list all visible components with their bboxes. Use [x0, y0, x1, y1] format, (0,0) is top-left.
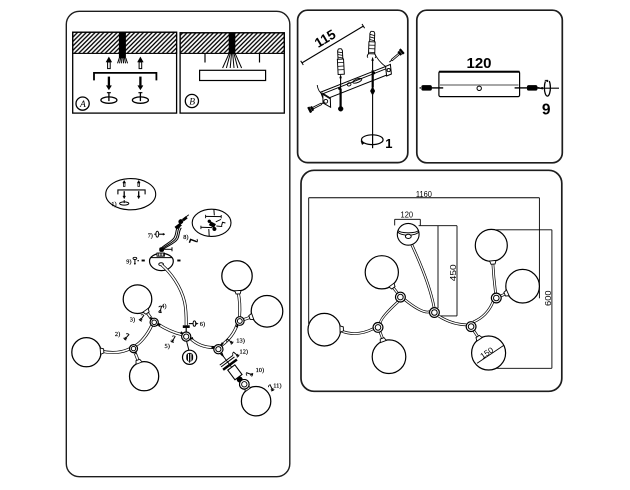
svg-text:1: 1: [385, 136, 392, 151]
svg-text:8): 8): [183, 234, 188, 241]
svg-text:3): 3): [130, 317, 135, 324]
svg-text:450: 450: [449, 264, 458, 282]
svg-text:600: 600: [544, 290, 553, 306]
svg-text:11): 11): [273, 383, 281, 390]
svg-text:9: 9: [542, 102, 551, 119]
svg-text:1): 1): [111, 201, 116, 208]
svg-text:12): 12): [240, 349, 249, 356]
svg-text:2): 2): [115, 331, 120, 338]
svg-text:9): 9): [126, 258, 131, 265]
svg-text:B: B: [189, 97, 195, 107]
svg-text:13): 13): [236, 338, 245, 345]
svg-text:10): 10): [256, 367, 265, 374]
svg-text:120: 120: [466, 55, 491, 72]
svg-text:A: A: [79, 100, 86, 110]
svg-text:6): 6): [200, 321, 205, 328]
svg-text:5): 5): [165, 343, 170, 350]
svg-text:7): 7): [148, 232, 153, 239]
svg-text:120: 120: [401, 211, 414, 220]
svg-text:1160: 1160: [416, 190, 433, 199]
